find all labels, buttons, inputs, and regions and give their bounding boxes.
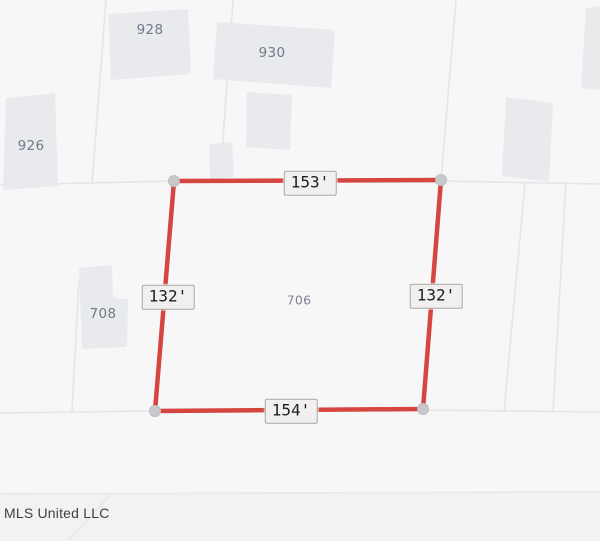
parcel-map: [0, 0, 600, 541]
building-right: [502, 97, 553, 182]
map-canvas[interactable]: 153' 132' 132' 154' 928 930 926 708 706 …: [0, 0, 600, 541]
building-928: [108, 9, 191, 80]
parcel-corner-marker: [150, 406, 161, 417]
parcel-corner-marker: [436, 175, 447, 186]
building-small-mid: [246, 92, 292, 150]
parcel-corner-marker: [418, 404, 429, 415]
building-930: [213, 22, 335, 88]
building-small-lower: [209, 142, 234, 179]
parcel-corner-marker: [169, 176, 180, 187]
building-926: [3, 93, 58, 190]
